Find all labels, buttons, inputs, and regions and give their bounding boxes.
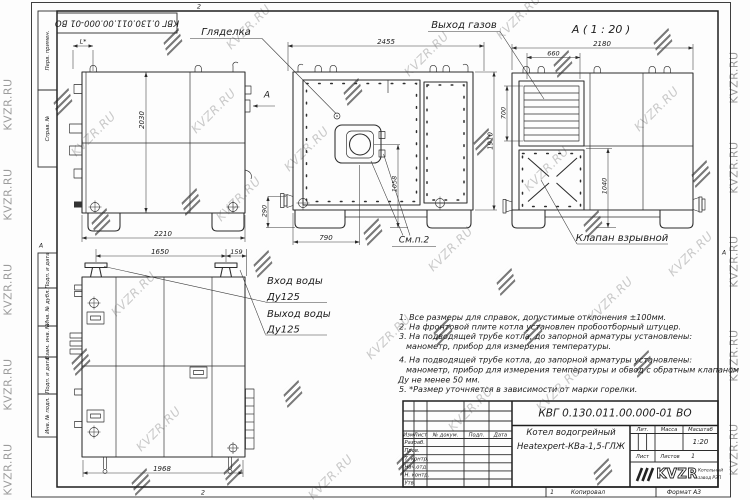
stamp-sprav-no: Справ. №: [45, 116, 51, 142]
dim-side-width: 2210: [154, 230, 172, 238]
dim-front-bottom: 790: [319, 234, 333, 242]
tb-col-data: Дата: [493, 432, 507, 438]
tb-row-tkontr: Т. контр.: [405, 456, 429, 462]
dim-plan-top2: 159: [230, 248, 242, 256]
stamp-podp-data-1: Подп. и дата: [45, 252, 51, 288]
zone-letter-left: А: [38, 243, 43, 250]
stamp-podp-data-2: Подп. и дата: [45, 357, 51, 393]
dim-front-height: 1910: [487, 132, 495, 150]
kvzr-logo-text: KVZR: [656, 467, 698, 482]
label-gas-outlet: Выход газов: [431, 20, 497, 31]
tb-row-prov: Пров.: [405, 448, 420, 454]
kvzr-logo-sub1: Котельный: [698, 468, 723, 474]
dim-louver-height: 700: [500, 107, 508, 119]
note-line: 5. *Размер уточняется в зависимости от м…: [399, 385, 637, 394]
tb-col-dokum: № докум.: [432, 432, 459, 438]
tb-scale-label: Масштаб: [688, 427, 713, 433]
tb-sheets-value: 1: [691, 453, 695, 460]
tb-col-podp: Подп.: [469, 432, 485, 438]
fold-mark-top: 2: [197, 3, 201, 11]
kvzr-logo-icon: [637, 468, 653, 481]
drawing-sheet: KVZR.RUKVZR.RUKVZR.RUKVZR.RUKVZR.RUKVZR.…: [0, 0, 750, 500]
tb-row-razrab: Разраб.: [405, 440, 425, 446]
note-line: 2. На фронтовой плите котла установлен п…: [399, 323, 681, 332]
tb-col-list: Лист: [413, 432, 428, 438]
label-water-outlet-dn: Ду125: [266, 325, 300, 336]
note-line: манометр, прибор для измерения температу…: [406, 366, 739, 375]
sheet-frame: Перв. примен. Справ. № Подп. и дата Инв.…: [32, 3, 731, 498]
dim-front-top: 2455: [377, 38, 395, 46]
tb-mass-label: Масса: [661, 427, 678, 433]
notes-block: 1. Все размеры для справок, допустимые о…: [397, 313, 739, 394]
dim-front-burner: 1058: [391, 176, 399, 193]
designation-rotated: КВГ 0.130.011.00.000-01 ВО: [55, 18, 179, 28]
tb-sheets-label: Листов: [659, 454, 679, 460]
note-line: 4. На подводящей трубе котла, до запорно…: [399, 356, 692, 365]
footer-format: Формат А3: [667, 489, 701, 496]
dim-side-top: L*: [80, 38, 88, 46]
section-title: А ( 1 : 20 ): [571, 23, 630, 36]
label-water-inlet: Вход воды: [267, 276, 323, 287]
dim-front-flange: 290: [261, 205, 269, 217]
view-plan: 1650 159 1968 Вход воды Ду125 Выход воды…: [70, 248, 331, 477]
tb-product-name-1: Котел водогрейный: [526, 428, 616, 438]
fold-mark-bottom: 2: [201, 489, 205, 497]
dim-valve-center: 1040: [601, 178, 609, 195]
stamp-vzam-inv: Взам. инв. №: [45, 324, 51, 360]
tb-scale-value: 1:20: [693, 438, 709, 446]
kvzr-logo-sub2: завод РЭП: [698, 475, 722, 481]
footer-copied: Копировал: [571, 489, 605, 496]
tb-product-name-2: Heatexpert-КВа-1,5-ГЛЖ: [517, 442, 626, 452]
note-line: 3. На подводящей трубе котла, до запорно…: [399, 332, 692, 341]
view-section-a: А ( 1 : 20 ): [500, 23, 706, 244]
tb-row-nkontr: Н. контр.: [405, 473, 430, 479]
tb-designation: КВГ 0.130.011.00.000-01 ВО: [538, 408, 691, 420]
label-explosion-valve: Клапан взрывной: [576, 233, 669, 244]
view-side: 2030 2210 L* А: [70, 38, 276, 243]
dim-plan-top1: 1650: [151, 248, 169, 256]
tb-col-izm: Изм: [403, 432, 414, 438]
note-line: Ду не менее 50 мм.: [397, 376, 480, 385]
label-see-note: См.п.2: [399, 236, 430, 246]
zone-letter-right: А: [721, 250, 726, 257]
stamp-inv-podl: Инв. № подл.: [45, 397, 51, 434]
tb-sheet-label: Лист: [635, 454, 650, 460]
stamp-perv-primen: Перв. примен.: [45, 31, 51, 71]
tb-lit-label: Лит.: [636, 427, 649, 433]
label-water-inlet-dn: Ду125: [266, 292, 300, 303]
dim-louver-width: 660: [547, 50, 559, 58]
dim-plan-bottom: 1968: [153, 465, 171, 473]
dim-side-height: 2030: [138, 111, 146, 129]
footer-sheet-no: 1: [550, 489, 554, 496]
title-block: Изм Лист № докум. Подп. Дата Разраб. Про…: [403, 401, 723, 487]
tb-row-utv: Утв.: [405, 481, 416, 487]
section-arrow-label: А: [263, 91, 270, 101]
note-line: манометр, прибор для измерения температу…: [406, 342, 611, 351]
label-sight-glass: Гляделка: [201, 27, 251, 38]
note-line: 1. Все размеры для справок, допустимые о…: [399, 313, 666, 322]
drawing-svg: Перв. примен. Справ. № Подп. и дата Инв.…: [0, 0, 750, 500]
stamp-inv-dubl: Инв. № дубл.: [45, 289, 51, 325]
dim-section-top: 2180: [593, 40, 611, 48]
tb-row-nachotd: Нач.отд.: [405, 464, 428, 470]
label-water-outlet: Выход воды: [267, 309, 331, 320]
